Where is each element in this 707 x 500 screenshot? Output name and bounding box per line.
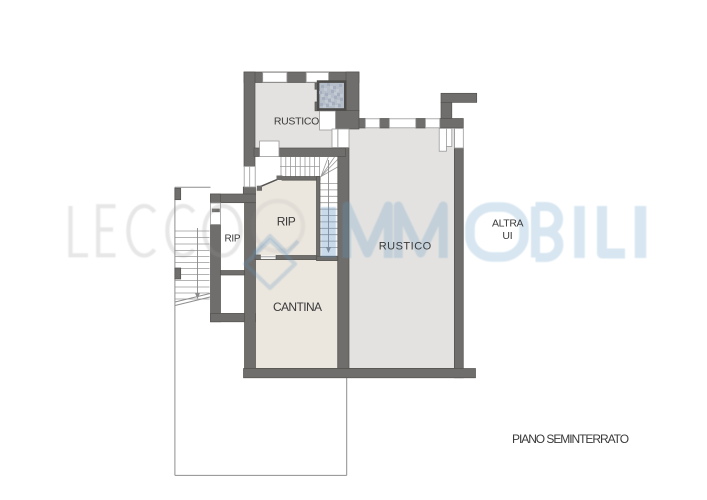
svg-text:RIP: RIP: [225, 233, 241, 244]
svg-text:CANTINA: CANTINA: [273, 300, 322, 314]
svg-text:RUSTICO: RUSTICO: [379, 241, 432, 253]
svg-text:PIANO SEMINTERRATO: PIANO SEMINTERRATO: [512, 432, 629, 446]
svg-text:ALTRA: ALTRA: [492, 217, 523, 229]
svg-text:RIP: RIP: [277, 215, 296, 229]
svg-text:RUSTICO: RUSTICO: [274, 116, 319, 128]
svg-text:UI: UI: [502, 230, 512, 242]
